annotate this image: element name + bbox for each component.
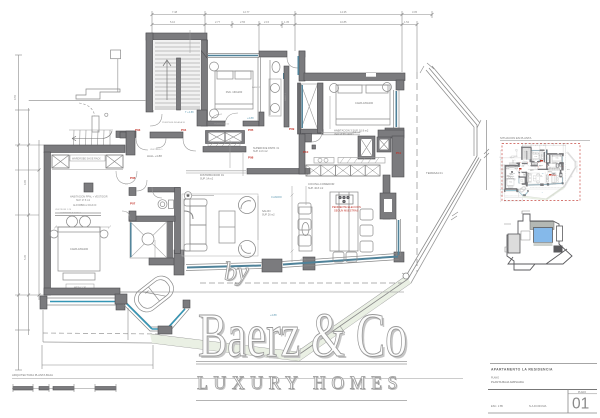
svg-text:5.35: 5.35 bbox=[23, 254, 27, 260]
svg-text:WARDROBE SHOE RACK: WARDROBE SHOE RACK bbox=[72, 158, 101, 161]
svg-text:PUERTA BLINDADA 90: PUERTA BLINDADA 90 bbox=[162, 121, 186, 124]
svg-text:CAMA 180x200: CAMA 180x200 bbox=[70, 247, 89, 251]
svg-text:by: by bbox=[224, 257, 249, 286]
svg-text:ALFOMBRA 2.00x3.00: ALFOMBRA 2.00x3.00 bbox=[73, 204, 97, 207]
svg-text:SUP. 40.8 m2: SUP. 40.8 m2 bbox=[308, 187, 324, 190]
svg-text:CAMA 180x200: CAMA 180x200 bbox=[355, 101, 374, 105]
svg-text:7.48: 7.48 bbox=[172, 10, 178, 14]
svg-text:APARTAMENTO LA RESIDENCIA: APARTAMENTO LA RESIDENCIA bbox=[491, 368, 553, 372]
svg-text:Baerz & Co: Baerz & Co bbox=[198, 302, 407, 370]
svg-text:2.15: 2.15 bbox=[264, 20, 270, 24]
svg-text:DISTRIBUIDOR 01: DISTRIBUIDOR 01 bbox=[200, 173, 224, 177]
svg-text:2.55: 2.55 bbox=[240, 20, 246, 24]
svg-text:BANO P.: BANO P. bbox=[252, 86, 261, 89]
svg-text:SUP. 26 m2: SUP. 26 m2 bbox=[262, 214, 275, 217]
svg-text:SITUACION EN PLANTA: SITUACION EN PLANTA bbox=[500, 136, 531, 140]
svg-text:VESTIBULO: VESTIBULO bbox=[150, 149, 163, 151]
svg-text:9.55: 9.55 bbox=[13, 94, 17, 100]
svg-text:PLANO: PLANO bbox=[578, 391, 586, 394]
svg-text:01: 01 bbox=[572, 396, 589, 413]
svg-text:P11: P11 bbox=[396, 151, 402, 155]
svg-text:1.52: 1.52 bbox=[404, 20, 410, 24]
svg-text:VER DET.: VER DET. bbox=[352, 132, 362, 134]
svg-text:SEGUN MUESTRAS: SEGUN MUESTRAS bbox=[334, 209, 359, 213]
svg-text:SUP. 27.5 m2: SUP. 27.5 m2 bbox=[76, 200, 91, 202]
svg-text:DVA. 160x200: DVA. 160x200 bbox=[226, 90, 243, 94]
svg-text:10.85: 10.85 bbox=[340, 20, 347, 24]
svg-text:LUXURY HOMES: LUXURY HOMES bbox=[197, 373, 403, 394]
svg-text:14.35: 14.35 bbox=[340, 10, 347, 14]
svg-text:ESC. 1:85: ESC. 1:85 bbox=[491, 404, 503, 408]
svg-text:VESTIDOR 1.20: VESTIDOR 1.20 bbox=[55, 209, 72, 211]
svg-text:SUP. 14.6 m2: SUP. 14.6 m2 bbox=[253, 150, 268, 153]
svg-text:P10: P10 bbox=[303, 150, 309, 154]
svg-text:3.05: 3.05 bbox=[412, 10, 418, 14]
svg-text:P07: P07 bbox=[130, 202, 136, 206]
svg-text:HABITACION PPAL + VESTIDOR: HABITACION PPAL + VESTIDOR bbox=[70, 196, 108, 199]
svg-text:PUERTA SU.02: PUERTA SU.02 bbox=[214, 123, 230, 126]
svg-text:5.10: 5.10 bbox=[170, 20, 176, 24]
svg-text:+1.35: +1.35 bbox=[300, 259, 306, 261]
svg-text:P04: P04 bbox=[181, 128, 187, 132]
svg-text:COCINA-COMEDOR: COCINA-COMEDOR bbox=[308, 182, 334, 186]
svg-text:N.A.DI.003.MA: N.A.DI.003.MA bbox=[529, 404, 547, 408]
svg-text:PLANTA BAJA AMPLIADA: PLANTA BAJA AMPLIADA bbox=[491, 380, 524, 384]
svg-text:12.77: 12.77 bbox=[243, 10, 250, 14]
svg-text:SUP. 14 m2: SUP. 14 m2 bbox=[200, 178, 214, 181]
svg-text:P03: P03 bbox=[135, 128, 141, 132]
svg-text:P08: P08 bbox=[248, 156, 254, 160]
svg-text:P05: P05 bbox=[248, 128, 254, 132]
svg-text:BANO 3: BANO 3 bbox=[284, 92, 287, 101]
svg-text:HALL +4.88: HALL +4.88 bbox=[147, 154, 162, 158]
svg-text:CUADRO: CUADRO bbox=[271, 196, 282, 199]
svg-text:VER MOBILIARIO: VER MOBILIARIO bbox=[334, 133, 354, 136]
svg-text:+4.88: +4.88 bbox=[247, 116, 254, 120]
svg-text:1.35: 1.35 bbox=[284, 20, 290, 24]
svg-text:TERRAZA 01: TERRAZA 01 bbox=[426, 171, 443, 175]
svg-text:4.95: 4.95 bbox=[23, 179, 27, 185]
svg-text:CORTINAS A SUELO: CORTINAS A SUELO bbox=[60, 212, 81, 215]
svg-text:2.77: 2.77 bbox=[215, 20, 221, 24]
svg-text:P09: P09 bbox=[289, 127, 295, 131]
svg-text:ARQUITECTURA PLANTA BAJA: ARQUITECTURA PLANTA BAJA bbox=[12, 373, 53, 377]
svg-text:PENDIENTE ELECCION: PENDIENTE ELECCION bbox=[332, 205, 361, 209]
svg-text:T +4.88: T +4.88 bbox=[185, 111, 194, 114]
